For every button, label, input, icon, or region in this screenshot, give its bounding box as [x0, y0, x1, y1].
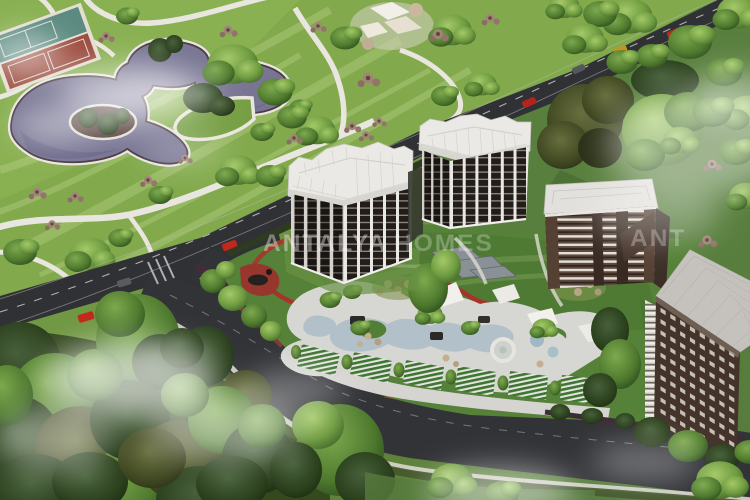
svg-text:ANTALYA: ANTALYA	[263, 230, 388, 257]
svg-text:HOMES: HOMES	[394, 230, 494, 257]
svg-text:ANT: ANT	[630, 225, 686, 252]
